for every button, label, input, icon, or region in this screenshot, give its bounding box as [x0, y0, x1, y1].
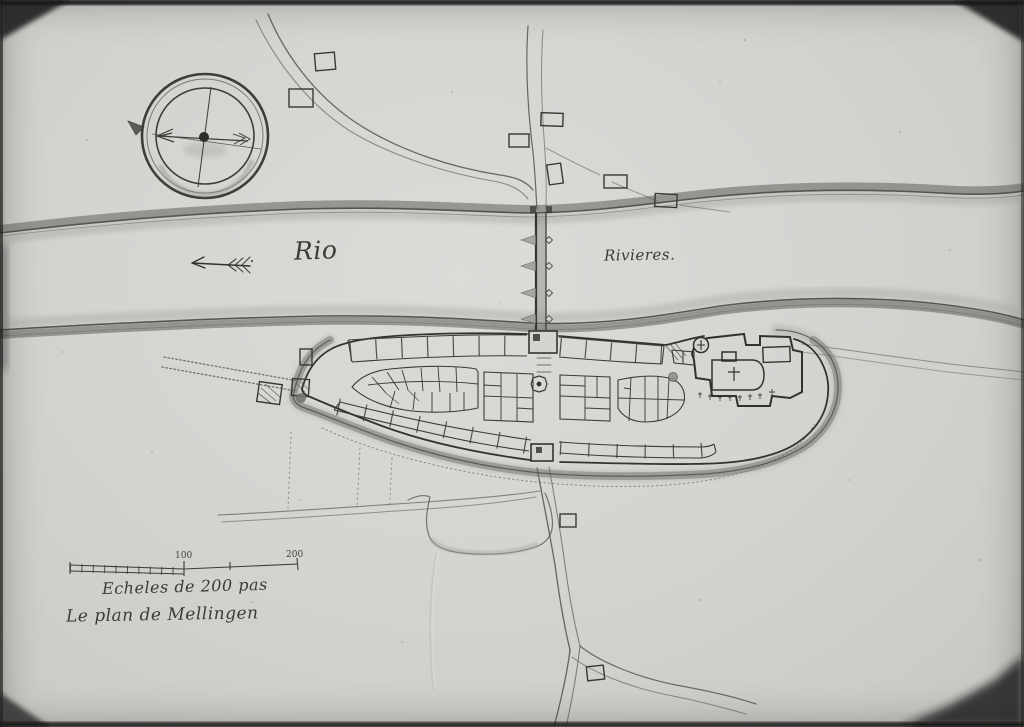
bridge	[521, 206, 553, 330]
river-label-rivieres: Rivieres.	[604, 245, 676, 264]
west-lens-block	[352, 366, 478, 412]
road-west	[162, 357, 298, 391]
north-gate	[529, 331, 557, 372]
scale-tick-200: 200	[286, 550, 303, 560]
centre-block	[484, 372, 533, 422]
paper-texture	[61, 39, 981, 643]
church-tower	[694, 338, 709, 353]
road-north	[527, 26, 546, 209]
church	[712, 352, 764, 390]
riverbank-top	[0, 186, 1024, 239]
west-gate-turret	[296, 393, 306, 403]
east-lens-block-b	[618, 376, 685, 422]
map-title: Le plan de Mellingen	[66, 603, 259, 626]
east-fountain	[669, 373, 678, 382]
church-cross-icon	[728, 367, 740, 381]
scale-tick-100: 100	[175, 551, 192, 561]
river-label-rio: Rio	[294, 235, 338, 265]
roads	[162, 14, 1024, 727]
north-building-row	[348, 335, 694, 365]
river	[0, 186, 1024, 336]
compass-rose	[128, 74, 268, 198]
map-photo: Rio Rivieres. 100 200 Echeles de 200 pas…	[0, 0, 1024, 727]
east-block-a	[560, 375, 610, 421]
south-gate	[531, 444, 553, 461]
riverbank-bottom	[0, 292, 1024, 336]
outlying-buildings	[257, 52, 678, 681]
road-south	[537, 467, 756, 727]
church-precinct	[692, 334, 802, 406]
church-annex-building	[763, 347, 791, 363]
town-rampart	[291, 330, 838, 476]
paper-crease	[430, 552, 438, 690]
field-dotted-lines	[288, 432, 392, 508]
flow-direction-arrow-icon	[192, 257, 253, 273]
road-south-eastwest	[218, 491, 540, 522]
